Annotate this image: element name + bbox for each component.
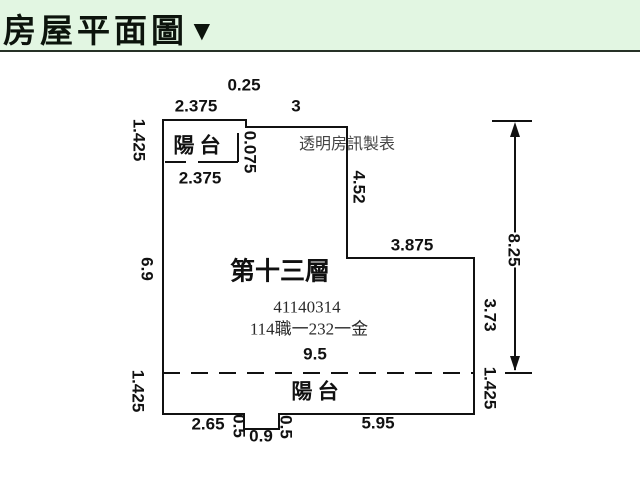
dim-upper-right-wall-height: 4.52 bbox=[351, 170, 368, 203]
dim-notch-left-depth: 0.5 bbox=[231, 414, 248, 438]
dim-left-balcony2-height: 1.425 bbox=[130, 370, 147, 413]
balcony-bottom-label: 陽 台 bbox=[291, 382, 338, 403]
dim-mid-wall-width: 3.875 bbox=[391, 237, 434, 254]
dim-notch-right-depth: 0.5 bbox=[278, 415, 295, 439]
floor-title: 第十三層 bbox=[230, 260, 330, 285]
registration-number: 114職一232一金 bbox=[250, 321, 368, 338]
dim-overall-height: 8.25 bbox=[506, 232, 523, 267]
dim-balcony-bottom-width: 2.375 bbox=[179, 170, 222, 187]
collapse-triangle-icon[interactable]: ▼ bbox=[188, 15, 216, 46]
dim-bottom-right-width: 5.95 bbox=[361, 415, 394, 432]
dim-balcony-top-width: 2.375 bbox=[175, 98, 218, 115]
permit-number: 41140314 bbox=[273, 299, 340, 316]
watermark-label: 透明房訊製表 bbox=[299, 137, 395, 153]
dim-bottom-left-width: 2.65 bbox=[191, 416, 224, 433]
plan-linework bbox=[0, 0, 640, 477]
balcony-top-label: 陽 台 bbox=[173, 136, 220, 157]
dim-step-height: 0.075 bbox=[242, 131, 259, 174]
dim-left-wall-height: 6.9 bbox=[139, 257, 156, 281]
dim-lower-right-wall-height: 3.73 bbox=[482, 298, 499, 331]
dim-right-balcony-height: 1.425 bbox=[482, 367, 499, 410]
dim-interior-width: 9.5 bbox=[303, 346, 327, 363]
dimension-arrow-up-icon bbox=[510, 122, 520, 137]
dim-notch-width: 0.9 bbox=[249, 428, 273, 445]
floor-plan: 0.252.3753陽 台0.075透明房訊製表2.3754.521.4256.… bbox=[0, 0, 640, 477]
section-header-plan[interactable]: 房屋平面圖▼ bbox=[0, 0, 640, 52]
dim-top-step-width: 0.25 bbox=[227, 77, 260, 94]
dimension-arrow-down-icon bbox=[510, 356, 520, 371]
dim-top-wall-width: 3 bbox=[291, 98, 300, 115]
page-title-text: 房屋平面圖 bbox=[3, 12, 188, 49]
dim-left-balcony-height: 1.425 bbox=[131, 119, 148, 162]
page-title: 房屋平面圖▼ bbox=[3, 4, 216, 52]
